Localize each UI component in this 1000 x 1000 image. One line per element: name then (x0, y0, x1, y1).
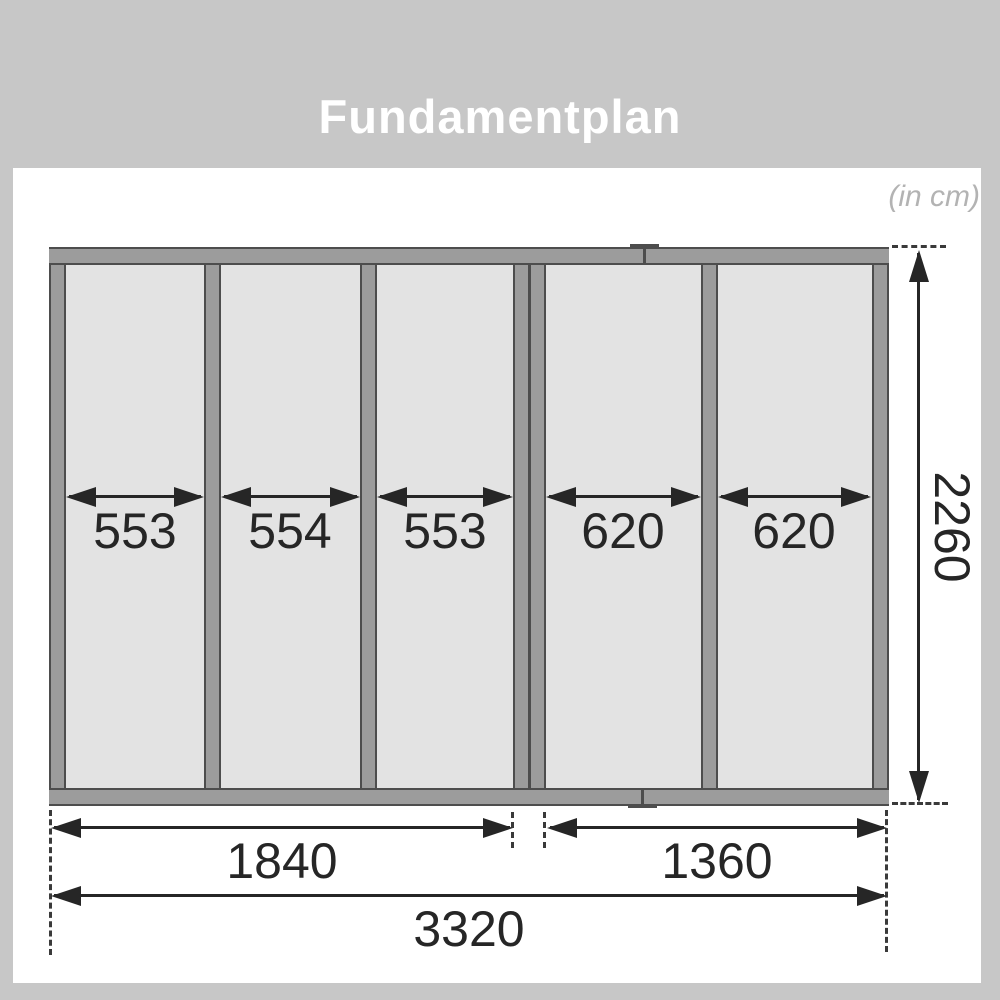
bottom-dim-label-1840: 1840 (182, 834, 382, 888)
post-2 (360, 263, 377, 790)
dim-arrow-3320 (51, 886, 887, 906)
post-3b-double (529, 263, 546, 790)
extension-line-mid-right (543, 812, 546, 848)
dim-arrow-section-2 (221, 487, 360, 507)
post-3a-double (513, 263, 530, 790)
total-width-dim-label: 3320 (369, 902, 569, 956)
arrowhead-right-icon (857, 886, 887, 906)
bottom-beam (49, 788, 889, 806)
arrowhead-down-icon (909, 771, 929, 803)
dim-line (54, 826, 510, 829)
post-4 (701, 263, 718, 790)
bottom-dim-label-1360: 1360 (617, 834, 817, 888)
dim-line (54, 894, 884, 897)
arrowhead-right-icon (330, 487, 360, 507)
dim-arrow-section-4 (546, 487, 701, 507)
height-dim-label: 2260 (927, 447, 979, 607)
dim-line (550, 826, 884, 829)
dim-arrow-section-3 (377, 487, 513, 507)
arrowhead-right-icon (174, 487, 204, 507)
post-left-edge (49, 263, 66, 790)
top-beam (49, 247, 889, 265)
section-dim-label-4: 620 (523, 504, 723, 558)
unit-note: (in cm) (680, 180, 980, 214)
top-beam-seam (643, 247, 646, 265)
top-beam-seam-cap (630, 244, 659, 248)
arrowhead-right-icon (671, 487, 701, 507)
dim-arrow-section-1 (66, 487, 204, 507)
page-title: Fundamentplan (0, 90, 1000, 144)
extension-line-top-right (892, 245, 946, 248)
dim-arrow-height (909, 250, 929, 803)
arrowhead-right-icon (483, 818, 513, 838)
dim-arrow-section-5 (718, 487, 871, 507)
bottom-beam-seam-cap (628, 804, 657, 808)
dim-arrow-1840 (51, 818, 513, 838)
dim-line (917, 253, 920, 800)
arrowhead-right-icon (857, 818, 887, 838)
dim-arrow-1360 (547, 818, 887, 838)
arrowhead-right-icon (841, 487, 871, 507)
section-dim-label-5: 620 (694, 504, 894, 558)
arrowhead-right-icon (483, 487, 513, 507)
post-1 (204, 263, 221, 790)
post-right-edge (872, 263, 889, 790)
